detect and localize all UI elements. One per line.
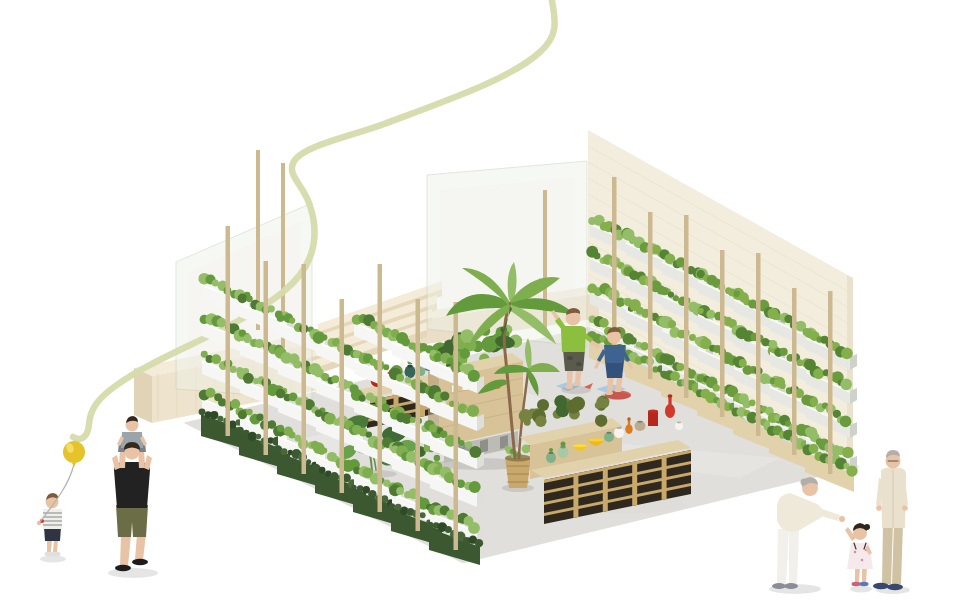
planter-greens bbox=[381, 404, 390, 413]
hedge-greens bbox=[319, 467, 326, 474]
red-cylinder bbox=[648, 409, 658, 426]
planter-greens bbox=[713, 384, 720, 391]
planter-greens bbox=[229, 366, 236, 373]
wood-post bbox=[416, 299, 421, 531]
circle bbox=[424, 446, 430, 452]
planter-greens bbox=[780, 348, 788, 356]
planter-greens bbox=[238, 410, 247, 419]
hedge-greens bbox=[281, 448, 288, 455]
planter-greens bbox=[468, 370, 480, 382]
planter-greens bbox=[405, 377, 411, 383]
figure-shadow bbox=[850, 586, 872, 593]
hedge-greens bbox=[236, 427, 244, 435]
hedge-greens bbox=[217, 416, 223, 422]
dress-dot bbox=[861, 559, 864, 562]
leg bbox=[135, 534, 146, 560]
hedge-greens bbox=[256, 434, 262, 440]
hedge-greens bbox=[381, 495, 388, 502]
circle bbox=[537, 399, 549, 411]
hair-bun bbox=[801, 479, 808, 486]
planter-greens bbox=[779, 383, 785, 389]
ellipse bbox=[627, 417, 631, 421]
right-wall-edge-shade bbox=[847, 275, 853, 474]
olive-shorts bbox=[116, 505, 148, 537]
shoe bbox=[784, 583, 798, 589]
leg bbox=[567, 369, 573, 386]
wood-post bbox=[340, 299, 345, 493]
grandfather bbox=[873, 450, 910, 594]
planter-greens bbox=[211, 354, 221, 364]
planter-greens bbox=[429, 424, 437, 432]
wood-post bbox=[792, 288, 797, 455]
illustration-stage: Isometric rendering of an indoor communi… bbox=[0, 0, 960, 613]
planter-greens bbox=[205, 388, 215, 398]
illustration-canvas: Isometric rendering of an indoor communi… bbox=[0, 0, 960, 613]
wood-post bbox=[684, 215, 689, 398]
planter-greens bbox=[243, 373, 254, 384]
leg bbox=[120, 534, 131, 566]
hedge-greens bbox=[199, 408, 206, 415]
blue-shorts bbox=[605, 361, 624, 378]
ellipse bbox=[548, 452, 553, 454]
planter-greens bbox=[810, 398, 818, 406]
planter-greens bbox=[809, 444, 819, 454]
ellipse bbox=[407, 365, 413, 368]
wood-post bbox=[226, 226, 231, 436]
planter-greens bbox=[359, 395, 366, 402]
shoe bbox=[52, 552, 61, 556]
planter-greens bbox=[670, 371, 680, 381]
ellipse bbox=[616, 427, 621, 429]
wood-post bbox=[720, 250, 725, 417]
planter-greens bbox=[268, 305, 275, 312]
planter-greens bbox=[769, 340, 778, 349]
planter-greens bbox=[238, 294, 248, 304]
planter-greens bbox=[706, 310, 715, 319]
father-with-child bbox=[108, 416, 158, 578]
planter-greens bbox=[813, 368, 824, 379]
foot bbox=[573, 382, 581, 386]
black-tshirt bbox=[114, 462, 150, 508]
planter-greens bbox=[469, 446, 481, 458]
planter-greens bbox=[331, 375, 339, 383]
planter-greens bbox=[289, 317, 295, 323]
camo-pants bbox=[563, 349, 585, 371]
planter-greens bbox=[668, 291, 674, 297]
planter-greens bbox=[288, 431, 295, 438]
shoe bbox=[887, 584, 903, 590]
khaki-pants-leg bbox=[882, 523, 893, 584]
white-pants-leg bbox=[789, 529, 799, 584]
ellipse bbox=[606, 432, 611, 434]
camo-patch bbox=[576, 362, 582, 366]
hedge-greens bbox=[351, 485, 356, 490]
leg bbox=[855, 567, 860, 582]
hedge-greens bbox=[306, 459, 311, 464]
camo-patch bbox=[567, 356, 573, 360]
planter-greens bbox=[840, 416, 852, 428]
circle bbox=[554, 395, 567, 408]
planter-greens bbox=[846, 465, 857, 476]
balloon-knot bbox=[72, 463, 76, 467]
polygon bbox=[603, 467, 608, 512]
planter-greens bbox=[321, 448, 327, 454]
shoe bbox=[873, 583, 889, 589]
toddler-with-balloon bbox=[37, 441, 85, 563]
sprig bbox=[561, 442, 566, 447]
foot bbox=[614, 388, 622, 392]
hand bbox=[876, 505, 882, 511]
balloon bbox=[63, 441, 85, 463]
planter-greens bbox=[468, 522, 480, 534]
hand bbox=[902, 505, 908, 511]
circle bbox=[434, 455, 441, 462]
hedge-greens bbox=[389, 503, 395, 509]
glass-tint bbox=[440, 178, 575, 315]
planter-greens bbox=[440, 392, 449, 401]
planter-greens bbox=[806, 361, 813, 368]
striped-shirt bbox=[43, 509, 62, 529]
planter-greens bbox=[599, 318, 609, 328]
wood-post bbox=[378, 264, 383, 512]
hedge-greens bbox=[248, 432, 257, 441]
shoe bbox=[860, 582, 869, 586]
planter-greens bbox=[465, 441, 472, 448]
planter-greens bbox=[277, 314, 285, 322]
ellipse bbox=[588, 438, 604, 441]
hedge-greens bbox=[357, 485, 364, 492]
planter-greens bbox=[629, 337, 637, 345]
hedge-greens bbox=[427, 522, 434, 529]
wood-post bbox=[828, 291, 833, 474]
polygon bbox=[573, 473, 578, 518]
circle bbox=[571, 396, 585, 410]
navy-shorts bbox=[44, 527, 61, 541]
foot bbox=[565, 385, 573, 389]
planter-greens bbox=[640, 342, 648, 350]
blue-tee bbox=[604, 345, 625, 363]
sneaker bbox=[132, 559, 148, 565]
palm-basket bbox=[505, 458, 531, 488]
wood-post bbox=[264, 261, 269, 455]
polygon bbox=[662, 455, 667, 500]
sneaker bbox=[115, 565, 131, 571]
planter-greens bbox=[698, 308, 704, 314]
planter-greens bbox=[469, 481, 481, 493]
planter-greens bbox=[321, 334, 327, 340]
pigtail bbox=[864, 524, 870, 530]
ellipse bbox=[668, 394, 673, 398]
planter-greens bbox=[383, 364, 389, 370]
circle bbox=[535, 416, 546, 427]
circle bbox=[519, 409, 533, 423]
wood-post bbox=[454, 302, 459, 550]
planter-greens bbox=[246, 295, 253, 302]
planter-greens bbox=[256, 414, 264, 422]
planter-greens bbox=[255, 339, 264, 348]
planter-greens bbox=[660, 287, 668, 295]
dress-dot bbox=[854, 551, 857, 554]
planter-greens bbox=[842, 447, 854, 459]
planter-greens bbox=[841, 347, 853, 359]
circle bbox=[595, 414, 607, 426]
wood-post bbox=[648, 212, 653, 379]
arm-raised bbox=[144, 455, 152, 470]
figure-shadow bbox=[40, 556, 66, 563]
figure-shadow bbox=[108, 568, 158, 578]
green-tee bbox=[561, 326, 586, 352]
circle bbox=[595, 402, 602, 409]
polygon bbox=[648, 411, 658, 426]
planter-greens bbox=[459, 440, 465, 446]
planter-greens bbox=[246, 409, 253, 416]
foot bbox=[605, 391, 613, 395]
planter-greens bbox=[594, 253, 601, 260]
ellipse bbox=[648, 409, 658, 412]
wood-post bbox=[302, 264, 307, 474]
white-pants-leg bbox=[777, 529, 789, 584]
little-girl bbox=[845, 523, 873, 593]
planter-greens bbox=[218, 398, 226, 406]
leg bbox=[862, 567, 867, 582]
ellipse bbox=[573, 444, 588, 447]
hedge-greens bbox=[420, 512, 426, 518]
hedge-greens bbox=[330, 472, 339, 481]
ellipse bbox=[677, 422, 681, 424]
shoe bbox=[772, 583, 786, 589]
polygon bbox=[632, 461, 637, 506]
hedge-greens bbox=[368, 490, 376, 498]
hand bbox=[839, 516, 845, 522]
hedge-greens bbox=[475, 539, 483, 547]
planter-greens bbox=[217, 318, 227, 328]
planter-greens bbox=[396, 374, 404, 382]
planter-greens bbox=[676, 363, 684, 371]
ellipse bbox=[637, 421, 643, 423]
planter-greens bbox=[673, 295, 679, 301]
shoe bbox=[852, 582, 861, 586]
planter-greens bbox=[396, 487, 404, 495]
planter-greens bbox=[410, 417, 416, 423]
dress bbox=[847, 543, 873, 569]
hedge-greens bbox=[210, 411, 218, 419]
planter-greens bbox=[293, 360, 302, 369]
sprig bbox=[549, 448, 553, 452]
planter-greens bbox=[230, 399, 240, 409]
plinth-side bbox=[134, 368, 152, 423]
planter-greens bbox=[749, 399, 756, 406]
arm-raised bbox=[112, 455, 120, 470]
circle bbox=[460, 348, 470, 358]
planter-greens bbox=[840, 379, 852, 391]
planter-greens bbox=[277, 425, 284, 432]
wood-post bbox=[756, 253, 761, 436]
planter-greens bbox=[467, 405, 479, 417]
circle bbox=[522, 444, 531, 453]
khaki-pants-leg bbox=[892, 523, 903, 584]
